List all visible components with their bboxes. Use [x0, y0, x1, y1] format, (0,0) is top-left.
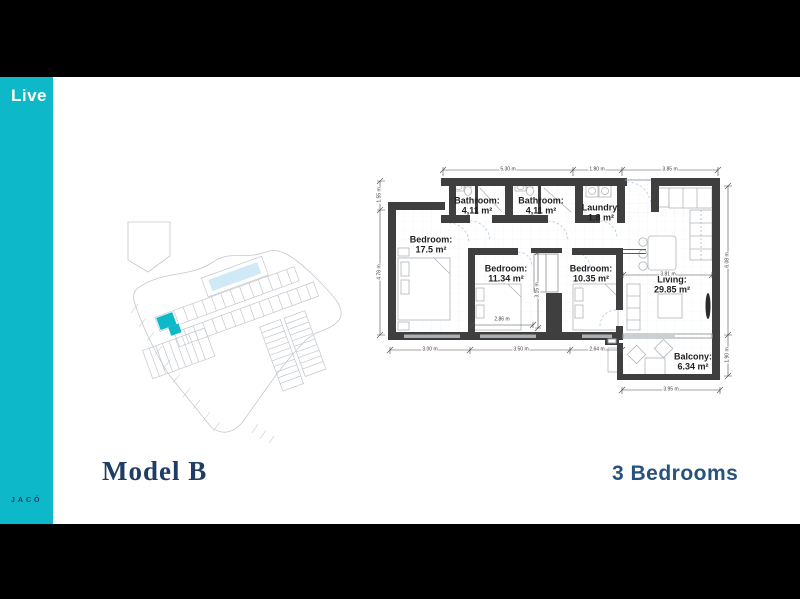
room-label-bathroom1: Bathroom: 4,11 m²	[454, 196, 500, 217]
floor-plan: Bathroom: 4,11 m² Bathroom: 4,11 m² Laun…	[368, 158, 764, 404]
room-label-bedroom2: Bedroom: 11.34 m²	[485, 264, 528, 285]
room-label-bedroom1: Bedroom: 17.5 m²	[410, 235, 453, 256]
dim-inner-living: 3.81 m	[659, 273, 676, 278]
dim-bottom-1: 3.00 m	[421, 348, 438, 353]
brand-logo: Live	[11, 86, 47, 106]
room-label-living: Living: 29.85 m²	[654, 275, 690, 296]
slide: Live JACÓ	[0, 0, 800, 599]
letterbox-bottom	[0, 524, 800, 599]
site-upper-parcel	[128, 222, 170, 272]
room-label-bathroom2: Bathroom: 4,11 m²	[518, 196, 564, 217]
dim-bottom-3: 2.64 m	[588, 348, 605, 353]
dim-right-1: 6.08 m	[726, 251, 731, 268]
brand-sidebar: Live JACÓ	[0, 77, 53, 524]
dim-inner-width: 2.86 m	[493, 318, 510, 323]
dim-top-3: 3.85 m	[661, 168, 678, 173]
dim-top-1: 5.30 m	[499, 168, 516, 173]
letterbox-top	[0, 0, 800, 77]
room-label-balcony: Balcony: 6.34 m²	[674, 352, 712, 373]
room-label-bedroom3: Bedroom: 10.35 m²	[570, 264, 613, 285]
site-plan-drawing	[108, 198, 353, 443]
dim-right-2: 1.90 m	[726, 346, 731, 363]
content-card: Live JACÓ	[0, 77, 800, 524]
site-buildings	[126, 243, 345, 432]
room-label-laundry: Laundry: 1.8 m²	[582, 203, 621, 224]
shore-hatching	[131, 304, 274, 443]
dim-inner-closet: 3.15 m	[536, 281, 541, 298]
location-label: JACÓ	[11, 497, 42, 504]
dim-bottom-2: 3.50 m	[512, 348, 529, 353]
bedrooms-title: 3 Bedrooms	[612, 462, 738, 486]
dim-left-2: 4.78 m	[378, 263, 383, 280]
dim-left-1: 1.55 m	[378, 186, 383, 203]
site-plan	[108, 198, 353, 443]
dim-balcony-bottom: 3.95 m	[662, 388, 679, 393]
model-title: Model B	[102, 456, 207, 487]
dim-top-2: 1.80 m	[588, 168, 605, 173]
